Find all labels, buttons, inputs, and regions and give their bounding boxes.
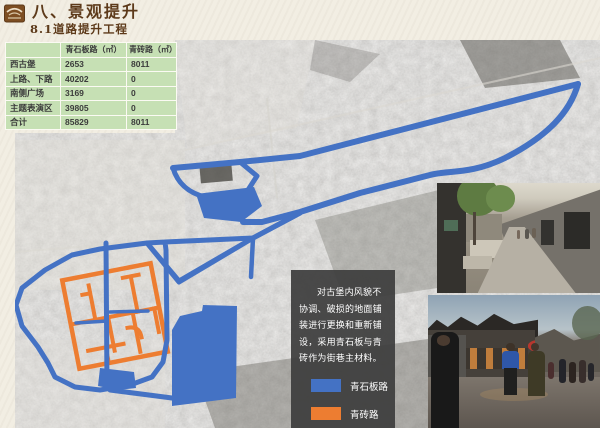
header: 八、景观提升 8.1道路提升工程	[4, 2, 140, 37]
cell-value: 0	[127, 72, 177, 87]
pavilion-icon	[4, 4, 25, 23]
table-row: 合计858298011	[6, 115, 177, 130]
row-label: 西古堡	[6, 57, 61, 72]
row-label: 主题表演区	[6, 101, 61, 116]
paving-table: 青石板路（㎡） 青砖路（㎡） 西古堡26538011上路、下路402020南侧广…	[5, 42, 177, 130]
cell-value: 8011	[127, 115, 177, 130]
table-header-row: 青石板路（㎡） 青砖路（㎡）	[6, 43, 177, 58]
legend-label: 青砖路	[350, 407, 379, 421]
legend-swatch	[311, 407, 341, 420]
row-label: 南侧广场	[6, 86, 61, 101]
col-header-bluestone: 青石板路（㎡）	[61, 43, 127, 58]
cell-value: 0	[127, 86, 177, 101]
note-text: 对古堡内风貌不协调、破损的地面铺装进行更换和重新铺设，采用青石板与青砖作为街巷主…	[299, 284, 387, 367]
table-row: 西古堡26538011	[6, 57, 177, 72]
paving-table-body: 西古堡26538011上路、下路402020南侧广场31690主题表演区3980…	[6, 57, 177, 130]
legend-label: 青石板路	[350, 379, 388, 393]
cell-value: 0	[127, 101, 177, 116]
table-row: 上路、下路402020	[6, 72, 177, 87]
cell-value: 8011	[127, 57, 177, 72]
table-row: 主题表演区398050	[6, 101, 177, 116]
pond-area	[172, 305, 237, 406]
col-header-brick: 青砖路（㎡）	[127, 43, 177, 58]
legend-swatch	[311, 379, 341, 392]
cell-value: 39805	[61, 101, 127, 116]
page-title: 八、景观提升	[32, 2, 140, 22]
photo-street-2	[428, 295, 600, 428]
legend-item: 青砖路	[311, 407, 387, 421]
cell-value: 40202	[61, 72, 127, 87]
row-label: 上路、下路	[6, 72, 61, 87]
cell-value: 3169	[61, 86, 127, 101]
cell-value: 85829	[61, 115, 127, 130]
slide: 八、景观提升 8.1道路提升工程	[0, 0, 600, 428]
page-subtitle: 8.1道路提升工程	[30, 22, 140, 37]
legend-item: 青石板路	[311, 379, 387, 393]
note-box: 对古堡内风貌不协调、破损的地面铺装进行更换和重新铺设，采用青石板与青砖作为街巷主…	[291, 270, 395, 428]
cell-value: 2653	[61, 57, 127, 72]
photo-street-1	[437, 183, 600, 293]
row-label: 合计	[6, 115, 61, 130]
col-header-blank	[6, 43, 61, 58]
map-legend: 青石板路青砖路	[299, 379, 387, 421]
table-row: 南侧广场31690	[6, 86, 177, 101]
